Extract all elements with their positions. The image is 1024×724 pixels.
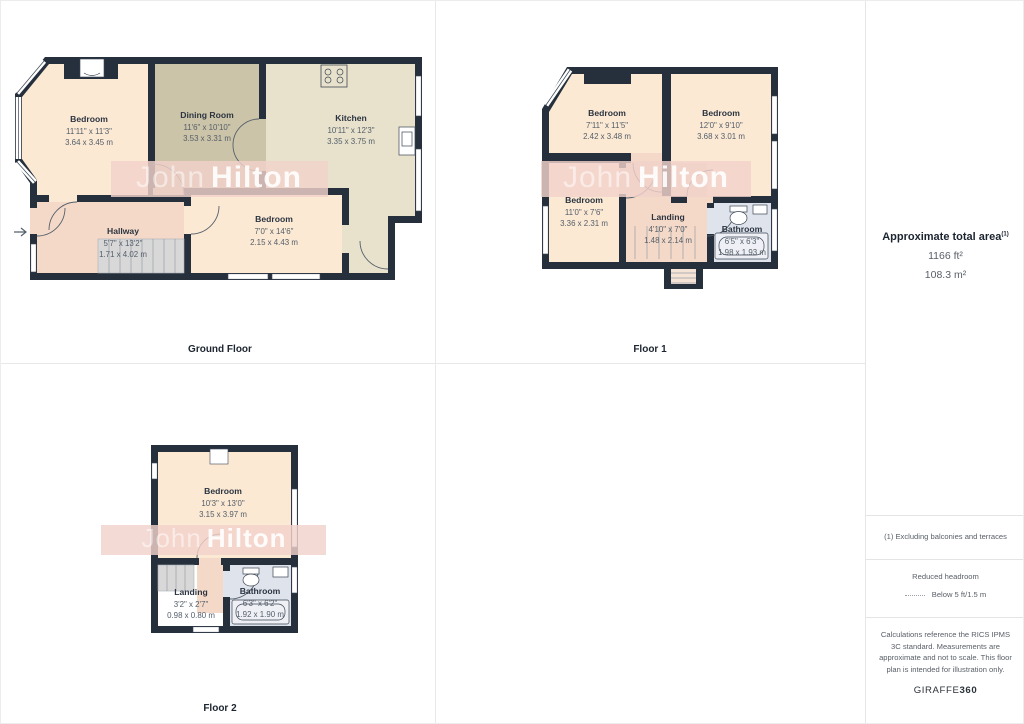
total-area-title: Approximate total area(1) <box>866 231 1024 243</box>
watermark: JohnHilton <box>111 161 328 197</box>
room-name-label: Kitchen <box>335 113 367 123</box>
room-dims-m: 1.71 x 4.02 m <box>99 250 147 259</box>
room-dims-ft: 11'0" x 7'6" <box>565 208 603 217</box>
gf-fireplace-icon <box>80 59 104 77</box>
room-dims-ft: 12'0" x 9'10" <box>699 121 742 130</box>
room-dims-ft: 6'5" x 6'3" <box>725 237 760 246</box>
svg-text:JohnHilton: JohnHilton <box>141 523 286 553</box>
room-name-label: Landing <box>651 212 684 222</box>
summary-sidebar: Approximate total area(1) 1166 ft² 108.3… <box>865 1 1024 724</box>
watermark: JohnHilton <box>541 161 751 197</box>
room-dims-m: 3.64 x 3.45 m <box>65 138 113 147</box>
f1-porch-steps <box>671 269 696 284</box>
floorplan-page: JohnHilton Bedroom 11'11" x 11'3" 3.64 x… <box>0 0 1024 724</box>
basin-icon <box>753 205 767 214</box>
room-dims-m: 1.98 x 1.93 m <box>718 248 766 257</box>
total-area-block: Approximate total area(1) 1166 ft² 108.3… <box>866 231 1024 281</box>
room-name-label: Hallway <box>107 226 139 236</box>
total-area-ft: 1166 ft² <box>866 250 1024 262</box>
room-dims-ft: 5'7" x 13'2" <box>104 239 143 248</box>
room-name-label: Bathroom <box>240 586 281 596</box>
floor2-plan: JohnHilton Bedroom 10'3" x 13'0" 3.15 x … <box>1 363 435 724</box>
room-dims-m: 3.15 x 3.97 m <box>199 510 247 519</box>
watermark-second: Hilton <box>638 161 729 194</box>
room-name-label: Bedroom <box>565 195 603 205</box>
reduced-headroom-block: Reduced headroom Below 5 ft/1.5 m <box>866 572 1024 599</box>
room-dims-ft: 6'3" x 6'2" <box>243 599 278 608</box>
watermark-second: Hilton <box>207 523 287 553</box>
svg-text:JohnHilton: JohnHilton <box>563 161 729 194</box>
room-dims-m: 2.42 x 3.48 m <box>583 132 631 141</box>
total-area-footnote-ref: (1) <box>1001 231 1008 237</box>
f2-chimney <box>210 449 228 464</box>
ground-floor-plan: JohnHilton Bedroom 11'11" x 11'3" 3.64 x… <box>1 1 435 363</box>
watermark-second: Hilton <box>211 161 302 194</box>
room-dims-m: 3.36 x 2.31 m <box>560 219 608 228</box>
disclaimer-text: Calculations reference the RICS IPMS 3C … <box>866 629 1024 675</box>
room-dims-m: 3.53 x 3.31 m <box>183 134 231 143</box>
watermark: JohnHilton <box>101 523 326 555</box>
floor-label-1: Floor 1 <box>633 344 667 355</box>
sidebar-divider <box>866 515 1024 516</box>
disclaimer-block: Calculations reference the RICS IPMS 3C … <box>866 629 1024 696</box>
brand-suffix: 360 <box>959 685 977 696</box>
room-dims-ft: 10'11" x 12'3" <box>327 126 374 135</box>
room-dims-m: 2.15 x 4.43 m <box>250 238 298 247</box>
reduced-headroom-row: Below 5 ft/1.5 m <box>866 590 1024 599</box>
room-dims-ft: 7'11" x 11'5" <box>586 121 628 130</box>
footnote-balconies: (1) Excluding balconies and terraces <box>866 532 1024 541</box>
room-dims-ft: 11'6" x 10'10" <box>183 123 230 132</box>
room-name-label: Landing <box>174 587 207 597</box>
room-dims-ft: 10'3" x 13'0" <box>201 499 244 508</box>
total-area-title-text: Approximate total area <box>882 231 1001 243</box>
room-name-label: Bedroom <box>70 114 108 124</box>
empty-panel <box>436 364 865 724</box>
total-area-m: 108.3 m² <box>866 269 1024 281</box>
room-dims-m: 1.92 x 1.90 m <box>236 610 284 619</box>
giraffe360-logo: GIRAFFE360 <box>866 685 1024 696</box>
sink-icon <box>399 127 415 155</box>
watermark-first: John <box>136 161 205 194</box>
toilet-icon <box>730 206 747 212</box>
entrance-arrow-icon <box>14 228 26 236</box>
sidebar-divider <box>866 617 1024 618</box>
room-dims-ft: 11'11" x 11'3" <box>66 127 112 136</box>
sidebar-divider <box>866 559 1024 560</box>
room-dims-ft: 7'0" x 14'6" <box>255 227 294 236</box>
room-dims-m: 1.48 x 2.14 m <box>644 236 692 245</box>
watermark-first: John <box>141 523 201 553</box>
reduced-headroom-title: Reduced headroom <box>866 572 1024 581</box>
toilet-icon <box>243 568 259 574</box>
floor1-plan: JohnHilton Bedroom 7'11" x 11'5" 2.42 x … <box>435 1 865 363</box>
basin-icon <box>273 567 288 577</box>
room-dims-m: 3.68 x 3.01 m <box>697 132 745 141</box>
room-name-label: Bedroom <box>255 214 293 224</box>
watermark-first: John <box>563 161 632 194</box>
floor-label-ground: Ground Floor <box>188 344 252 355</box>
room-name-label: Dining Room <box>180 110 234 120</box>
room-dims-m: 3.35 x 3.75 m <box>327 137 375 146</box>
floor-label-2: Floor 2 <box>203 703 237 714</box>
room-name-label: Bathroom <box>722 224 763 234</box>
room-name-label: Bedroom <box>702 108 740 118</box>
reduced-headroom-value: Below 5 ft/1.5 m <box>932 590 986 599</box>
room-name-label: Bedroom <box>204 486 242 496</box>
room-name-label: Bedroom <box>588 108 626 118</box>
brand-name: GIRAFFE <box>914 685 960 696</box>
room-dims-ft: 3'2" x 2'7" <box>174 600 209 609</box>
room-dims-m: 0.98 x 0.80 m <box>167 611 215 620</box>
svg-text:JohnHilton: JohnHilton <box>136 161 302 194</box>
room-dims-ft: 4'10" x 7'0" <box>649 225 688 234</box>
dotted-line-icon <box>905 595 925 596</box>
